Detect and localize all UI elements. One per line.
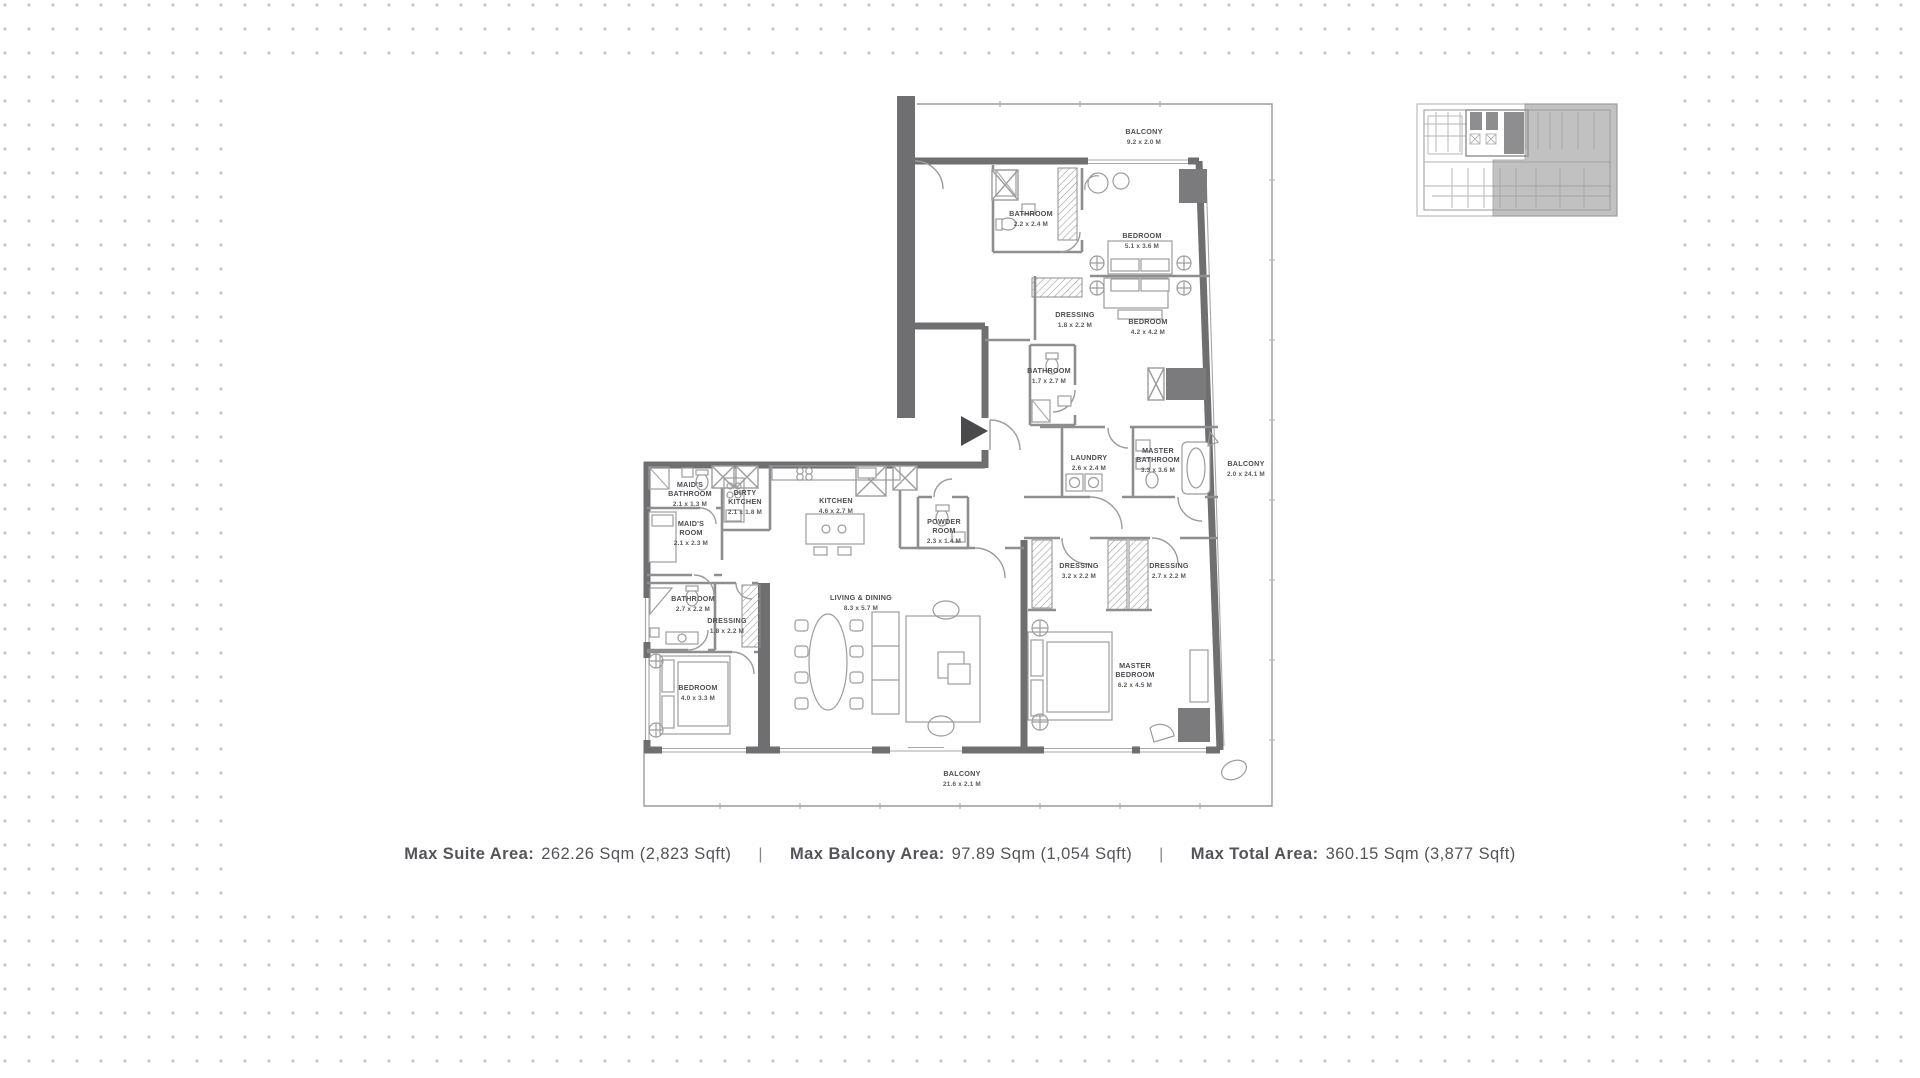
room-labels: BALCONY9.2 x 2.0 M BATHROOM2.2 x 2.4 M B… [668, 127, 1265, 788]
room-label-dressing-3: DRESSING2.7 x 2.2 M [1149, 561, 1189, 580]
room-label-bedroom-2: BEDROOM4.2 x 4.2 M [1128, 317, 1167, 336]
stat-separator: | [1159, 846, 1164, 864]
entry-arrow-icon [961, 416, 988, 446]
room-label-dressing-1: DRESSING1.8 x 2.2 M [1055, 310, 1095, 329]
room-label-dirty-kitchen: DIRTYKITCHEN2.1 x 1.8 M [728, 488, 762, 516]
room-label-kitchen: KITCHEN4.6 x 2.7 M [819, 496, 853, 515]
area-summary: Max Suite Area: 262.26 Sqm (2,823 Sqft) … [0, 845, 1920, 864]
room-label-balcony-top: BALCONY9.2 x 2.0 M [1125, 127, 1162, 146]
room-label-master-bathroom: MASTERBATHROOM3.3 x 3.6 M [1136, 446, 1180, 474]
room-label-dressing-2: DRESSING3.2 x 2.2 M [1059, 561, 1099, 580]
room-label-dressing-4: DRESSING1.8 x 2.2 M [707, 616, 747, 635]
area-stat-label: Max Suite Area: [404, 845, 534, 864]
area-stat-label: Max Total Area: [1191, 845, 1319, 864]
room-label-maids-room: MAID'SROOM2.1 x 2.3 M [674, 519, 708, 547]
key-plan [1417, 104, 1617, 216]
room-label-balcony-right: BALCONY2.0 x 24.1 M [1227, 459, 1265, 478]
area-stat-value: 262.26 Sqm (2,823 Sqft) [541, 845, 731, 864]
area-stat-balcony: Max Balcony Area: 97.89 Sqm (1,054 Sqft) [790, 845, 1132, 864]
room-label-bathroom-1: BATHROOM2.2 x 2.4 M [1009, 209, 1053, 228]
room-label-living-dining: LIVING & DINING8.3 x 5.7 M [830, 593, 892, 612]
area-stat-total: Max Total Area: 360.15 Sqm (3,877 Sqft) [1191, 845, 1516, 864]
page-background: BALCONY9.2 x 2.0 M BATHROOM2.2 x 2.4 M B… [0, 0, 1920, 1078]
room-label-bathroom-2: BATHROOM1.7 x 2.7 M [1027, 366, 1071, 385]
room-label-powder-room: POWDERROOM2.3 x 1.4 M [927, 517, 962, 545]
room-label-master-bedroom: MASTERBEDROOM6.2 x 4.5 M [1115, 661, 1154, 689]
area-stat-label: Max Balcony Area: [790, 845, 945, 864]
stat-separator: | [758, 846, 763, 864]
room-label-laundry: LAUNDRY2.6 x 2.4 M [1071, 453, 1108, 472]
room-label-balcony-bottom: BALCONY21.6 x 2.1 M [943, 769, 981, 788]
area-stat-value: 97.89 Sqm (1,054 Sqft) [952, 845, 1133, 864]
area-stat-value: 360.15 Sqm (3,877 Sqft) [1326, 845, 1516, 864]
floor-plan-drawing: BALCONY9.2 x 2.0 M BATHROOM2.2 x 2.4 M B… [0, 0, 1920, 1078]
area-stat-suite: Max Suite Area: 262.26 Sqm (2,823 Sqft) [404, 845, 731, 864]
balcony-outline [644, 101, 1275, 809]
